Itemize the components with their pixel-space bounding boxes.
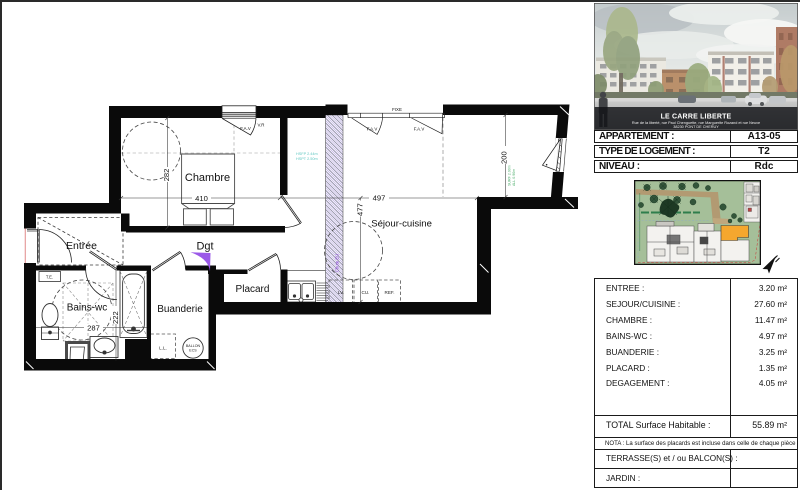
svg-text:ECS: ECS [189, 349, 197, 353]
svg-text:38230 PONT DE CHERUY: 38230 PONT DE CHERUY [673, 125, 719, 129]
svg-text:CU.: CU. [362, 290, 370, 295]
svg-text:282: 282 [162, 169, 171, 182]
svg-text:410: 410 [195, 194, 208, 203]
svg-text:F.A.V: F.A.V [240, 126, 251, 131]
svg-text:497: 497 [373, 194, 386, 203]
svg-text:Bains-wc: Bains-wc [67, 303, 108, 314]
svg-text:Chute EU: Chute EU [335, 254, 340, 272]
svg-text:Séjour-cuisine: Séjour-cuisine [371, 218, 432, 229]
svg-text:Rue de la liberté, rue Paul Ch: Rue de la liberté, rue Paul Chenguette, … [632, 120, 760, 124]
svg-text:Entrée: Entrée [66, 240, 97, 252]
svg-text:287: 287 [87, 324, 100, 333]
svg-text:LE CARRE LIBERTE: LE CARRE LIBERTE [661, 113, 732, 120]
svg-text:HSPT 2.50m: HSPT 2.50m [296, 157, 318, 161]
svg-text:200: 200 [500, 151, 509, 164]
svg-text:ALL 0.90m: ALL 0.90m [512, 169, 516, 186]
svg-text:HSFP 2.44m: HSFP 2.44m [296, 152, 318, 156]
svg-text:FIXE: FIXE [392, 107, 402, 112]
svg-text:SURF 2.00m: SURF 2.00m [508, 165, 512, 186]
svg-text:Buanderie: Buanderie [157, 304, 203, 315]
svg-text:BALLON: BALLON [186, 344, 201, 348]
svg-text:T.E.: T.E. [46, 275, 53, 280]
svg-text:REF.: REF. [385, 290, 395, 295]
svg-text:L.L.: L.L. [159, 346, 167, 351]
svg-text:Dgt: Dgt [196, 241, 213, 253]
svg-text:Placard: Placard [236, 284, 270, 295]
svg-text:222: 222 [111, 311, 120, 324]
svg-text:LV.: LV. [338, 290, 344, 295]
svg-text:477: 477 [356, 203, 365, 216]
svg-text:V.R: V.R [258, 123, 265, 128]
svg-text:Chambre: Chambre [185, 172, 230, 184]
svg-text:F.A.V: F.A.V [414, 126, 425, 131]
svg-text:F.A.V: F.A.V [367, 126, 378, 131]
